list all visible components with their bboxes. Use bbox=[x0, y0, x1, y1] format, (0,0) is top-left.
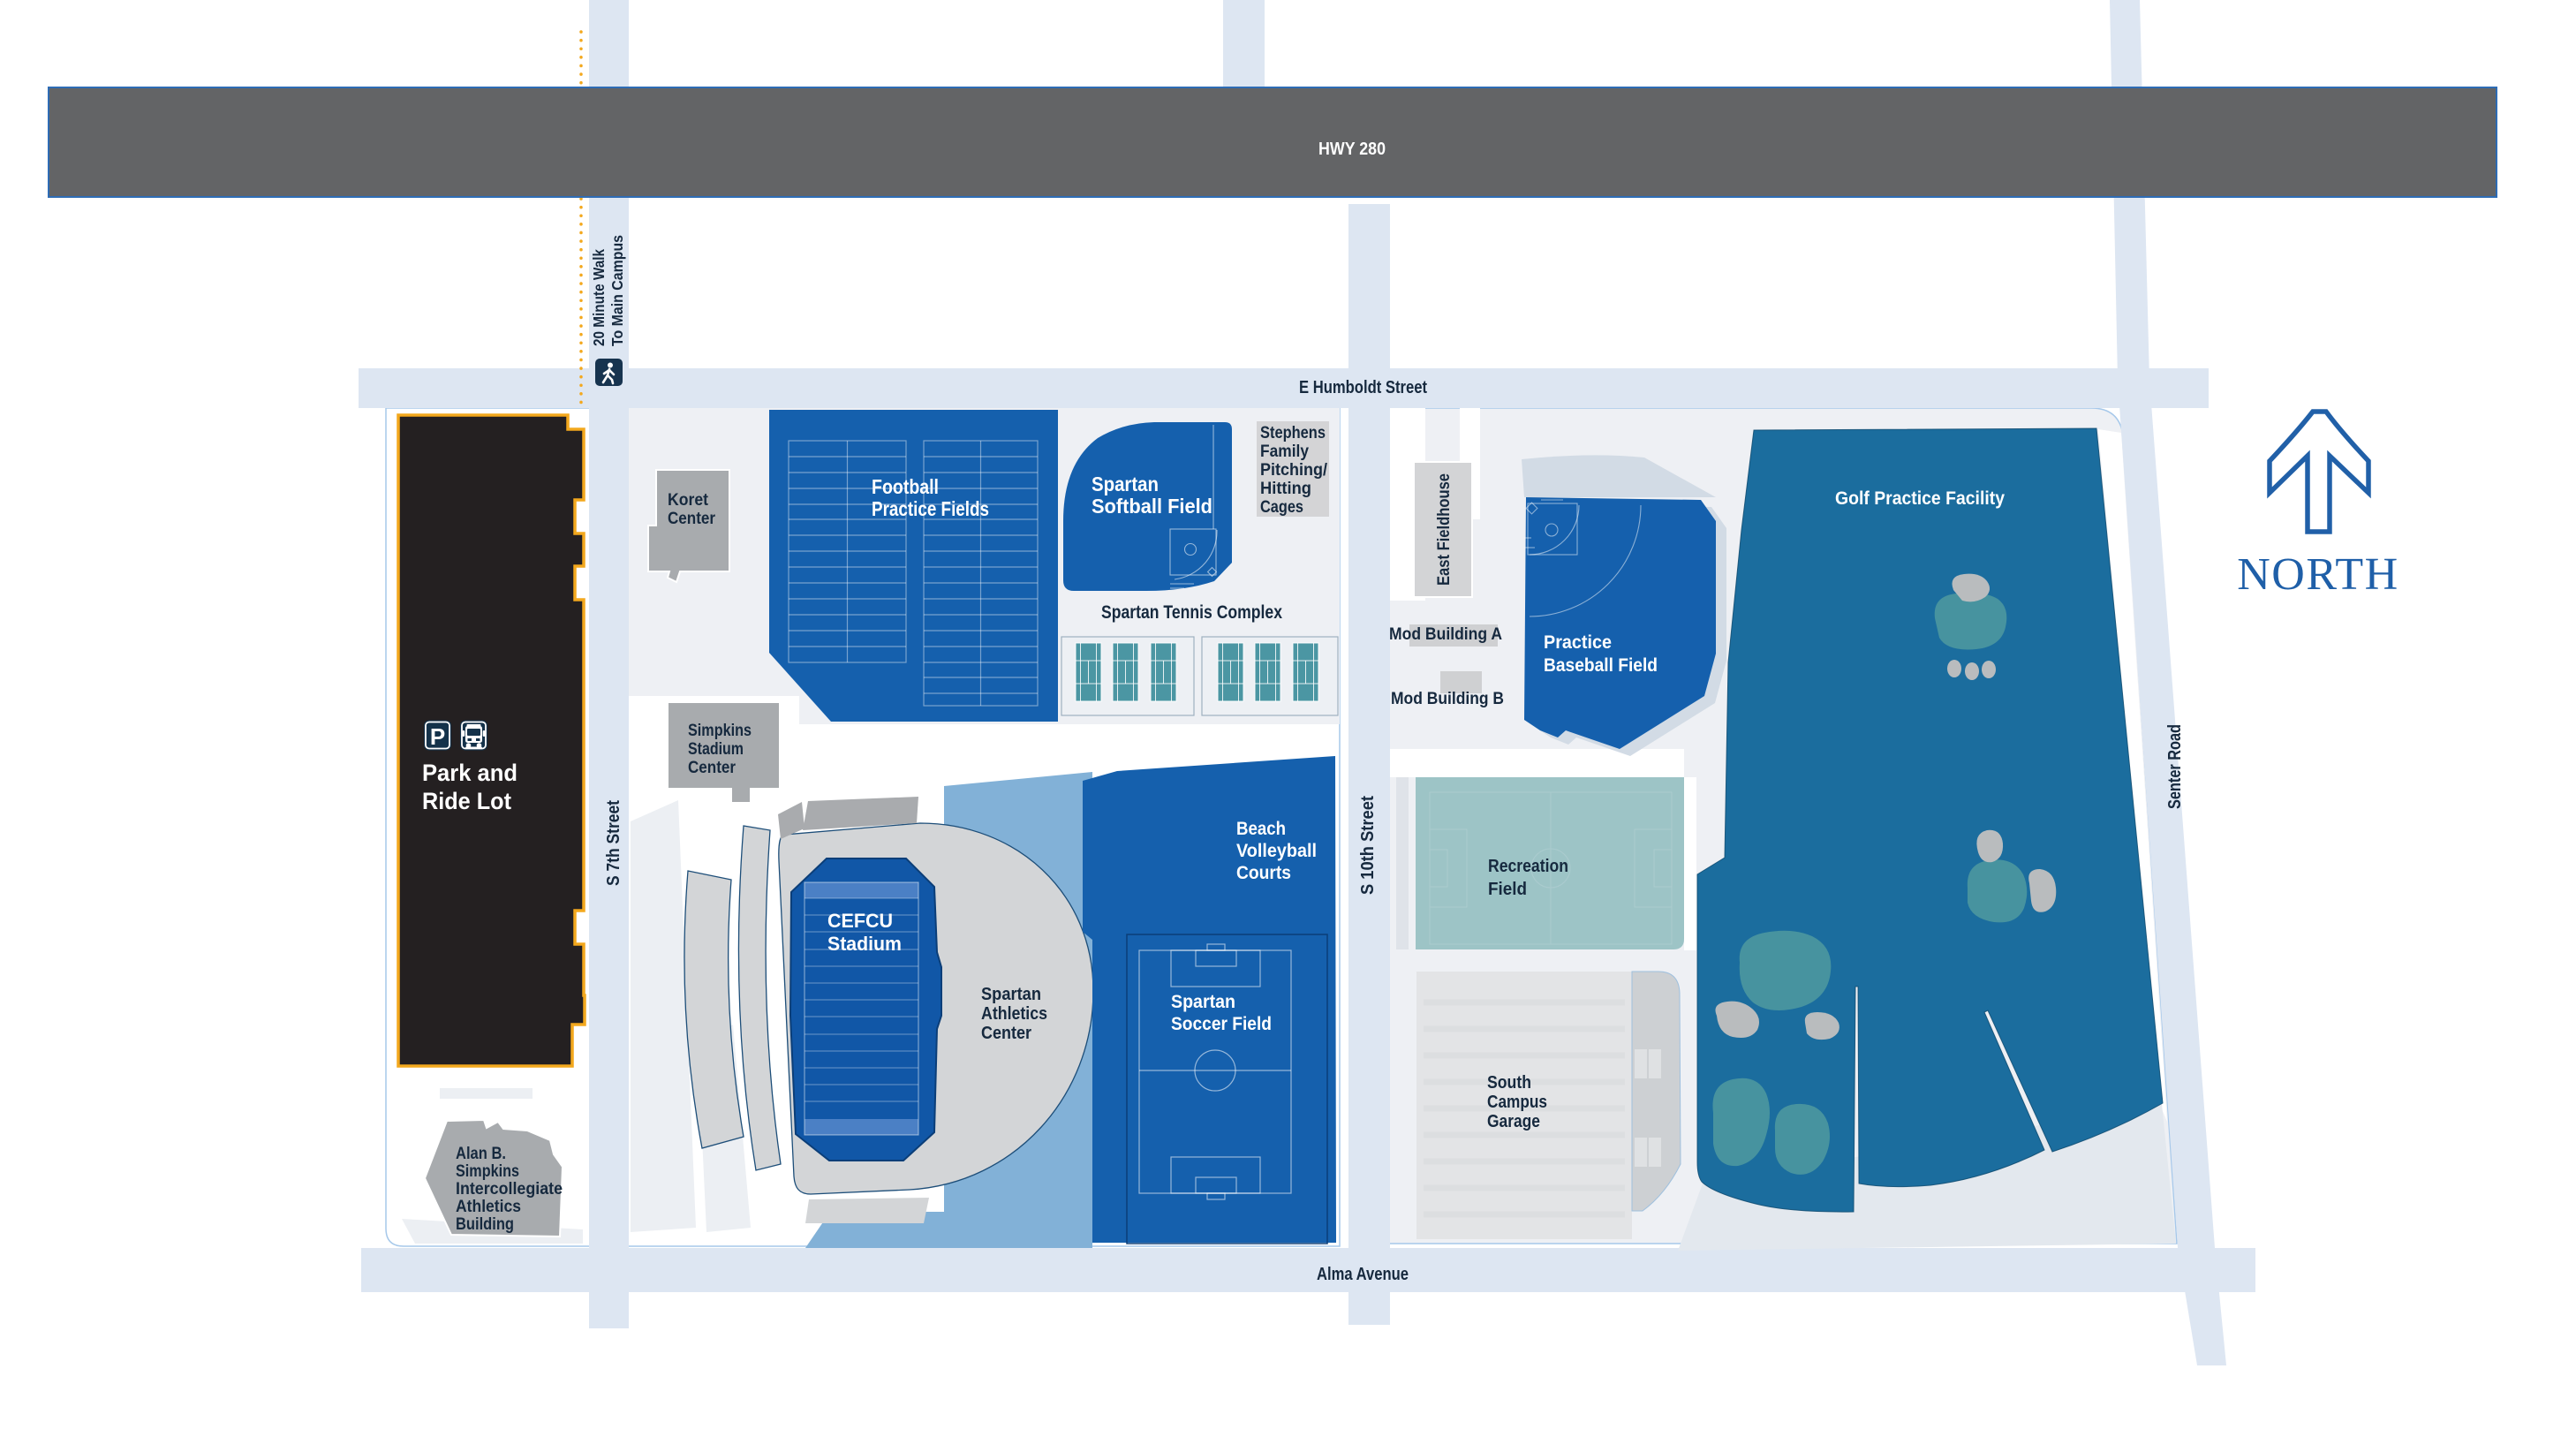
svg-text:HWY 280: HWY 280 bbox=[1318, 140, 1386, 159]
svg-text:Simpkins: Simpkins bbox=[688, 722, 752, 740]
svg-text:Mod Building B: Mod Building B bbox=[1391, 689, 1504, 708]
svg-text:Spartan Tennis Complex: Spartan Tennis Complex bbox=[1101, 601, 1282, 623]
svg-text:Campus: Campus bbox=[1487, 1092, 1547, 1112]
svg-text:Stadium: Stadium bbox=[827, 933, 902, 955]
svg-text:Senter Road: Senter Road bbox=[2165, 724, 2185, 809]
svg-text:Simpkins: Simpkins bbox=[456, 1162, 519, 1181]
svg-text:NORTH: NORTH bbox=[2237, 549, 2398, 600]
svg-text:Center: Center bbox=[981, 1023, 1031, 1043]
svg-text:Softball Field: Softball Field bbox=[1092, 495, 1212, 518]
svg-text:S 7th Street: S 7th Street bbox=[604, 800, 623, 886]
svg-text:Spartan: Spartan bbox=[1092, 473, 1159, 495]
svg-text:Intercollegiate: Intercollegiate bbox=[456, 1180, 563, 1199]
svg-text:20 Minute Walk: 20 Minute Walk bbox=[590, 249, 608, 346]
svg-text:Field: Field bbox=[1488, 879, 1527, 899]
svg-text:Center: Center bbox=[668, 510, 716, 528]
svg-text:Koret: Koret bbox=[668, 491, 709, 510]
svg-text:Alan B.: Alan B. bbox=[456, 1145, 506, 1163]
svg-text:S 10th Street: S 10th Street bbox=[1358, 796, 1378, 895]
svg-text:Mod Building A: Mod Building A bbox=[1389, 624, 1502, 644]
svg-text:P: P bbox=[430, 723, 445, 750]
svg-text:Stephens: Stephens bbox=[1260, 423, 1326, 442]
svg-text:Garage: Garage bbox=[1487, 1111, 1540, 1131]
svg-text:Football: Football bbox=[872, 475, 939, 498]
svg-text:Spartan: Spartan bbox=[1171, 991, 1235, 1012]
svg-text:Family: Family bbox=[1260, 442, 1309, 461]
svg-text:East Fieldhouse: East Fieldhouse bbox=[1434, 473, 1454, 586]
svg-text:Spartan: Spartan bbox=[981, 984, 1041, 1004]
svg-text:Park and: Park and bbox=[422, 760, 517, 786]
svg-text:Soccer Field: Soccer Field bbox=[1171, 1013, 1272, 1034]
svg-text:To Main Campus: To Main Campus bbox=[608, 235, 626, 346]
svg-text:Ride Lot: Ride Lot bbox=[422, 788, 511, 814]
svg-text:Volleyball: Volleyball bbox=[1236, 840, 1317, 861]
svg-text:Recreation: Recreation bbox=[1488, 856, 1568, 876]
svg-text:Baseball Field: Baseball Field bbox=[1544, 654, 1658, 676]
svg-text:South: South bbox=[1487, 1072, 1531, 1093]
svg-text:CEFCU: CEFCU bbox=[827, 910, 893, 932]
svg-text:Building: Building bbox=[456, 1215, 514, 1234]
svg-text:Beach: Beach bbox=[1236, 818, 1286, 839]
svg-text:Practice Fields: Practice Fields bbox=[872, 497, 989, 520]
svg-text:Stadium: Stadium bbox=[688, 740, 744, 759]
svg-text:Golf Practice Facility: Golf Practice Facility bbox=[1835, 488, 2005, 509]
svg-text:Cages: Cages bbox=[1260, 497, 1303, 517]
svg-text:Alma Avenue: Alma Avenue bbox=[1317, 1264, 1409, 1284]
svg-text:Hitting: Hitting bbox=[1260, 479, 1311, 498]
svg-text:Athletics: Athletics bbox=[981, 1003, 1047, 1024]
svg-text:Courts: Courts bbox=[1236, 862, 1291, 883]
svg-text:Practice: Practice bbox=[1544, 632, 1612, 653]
svg-text:E Humboldt Street: E Humboldt Street bbox=[1299, 378, 1427, 397]
svg-text:Athletics: Athletics bbox=[456, 1198, 521, 1216]
svg-text:Pitching/: Pitching/ bbox=[1260, 460, 1328, 480]
svg-text:Center: Center bbox=[688, 759, 737, 777]
